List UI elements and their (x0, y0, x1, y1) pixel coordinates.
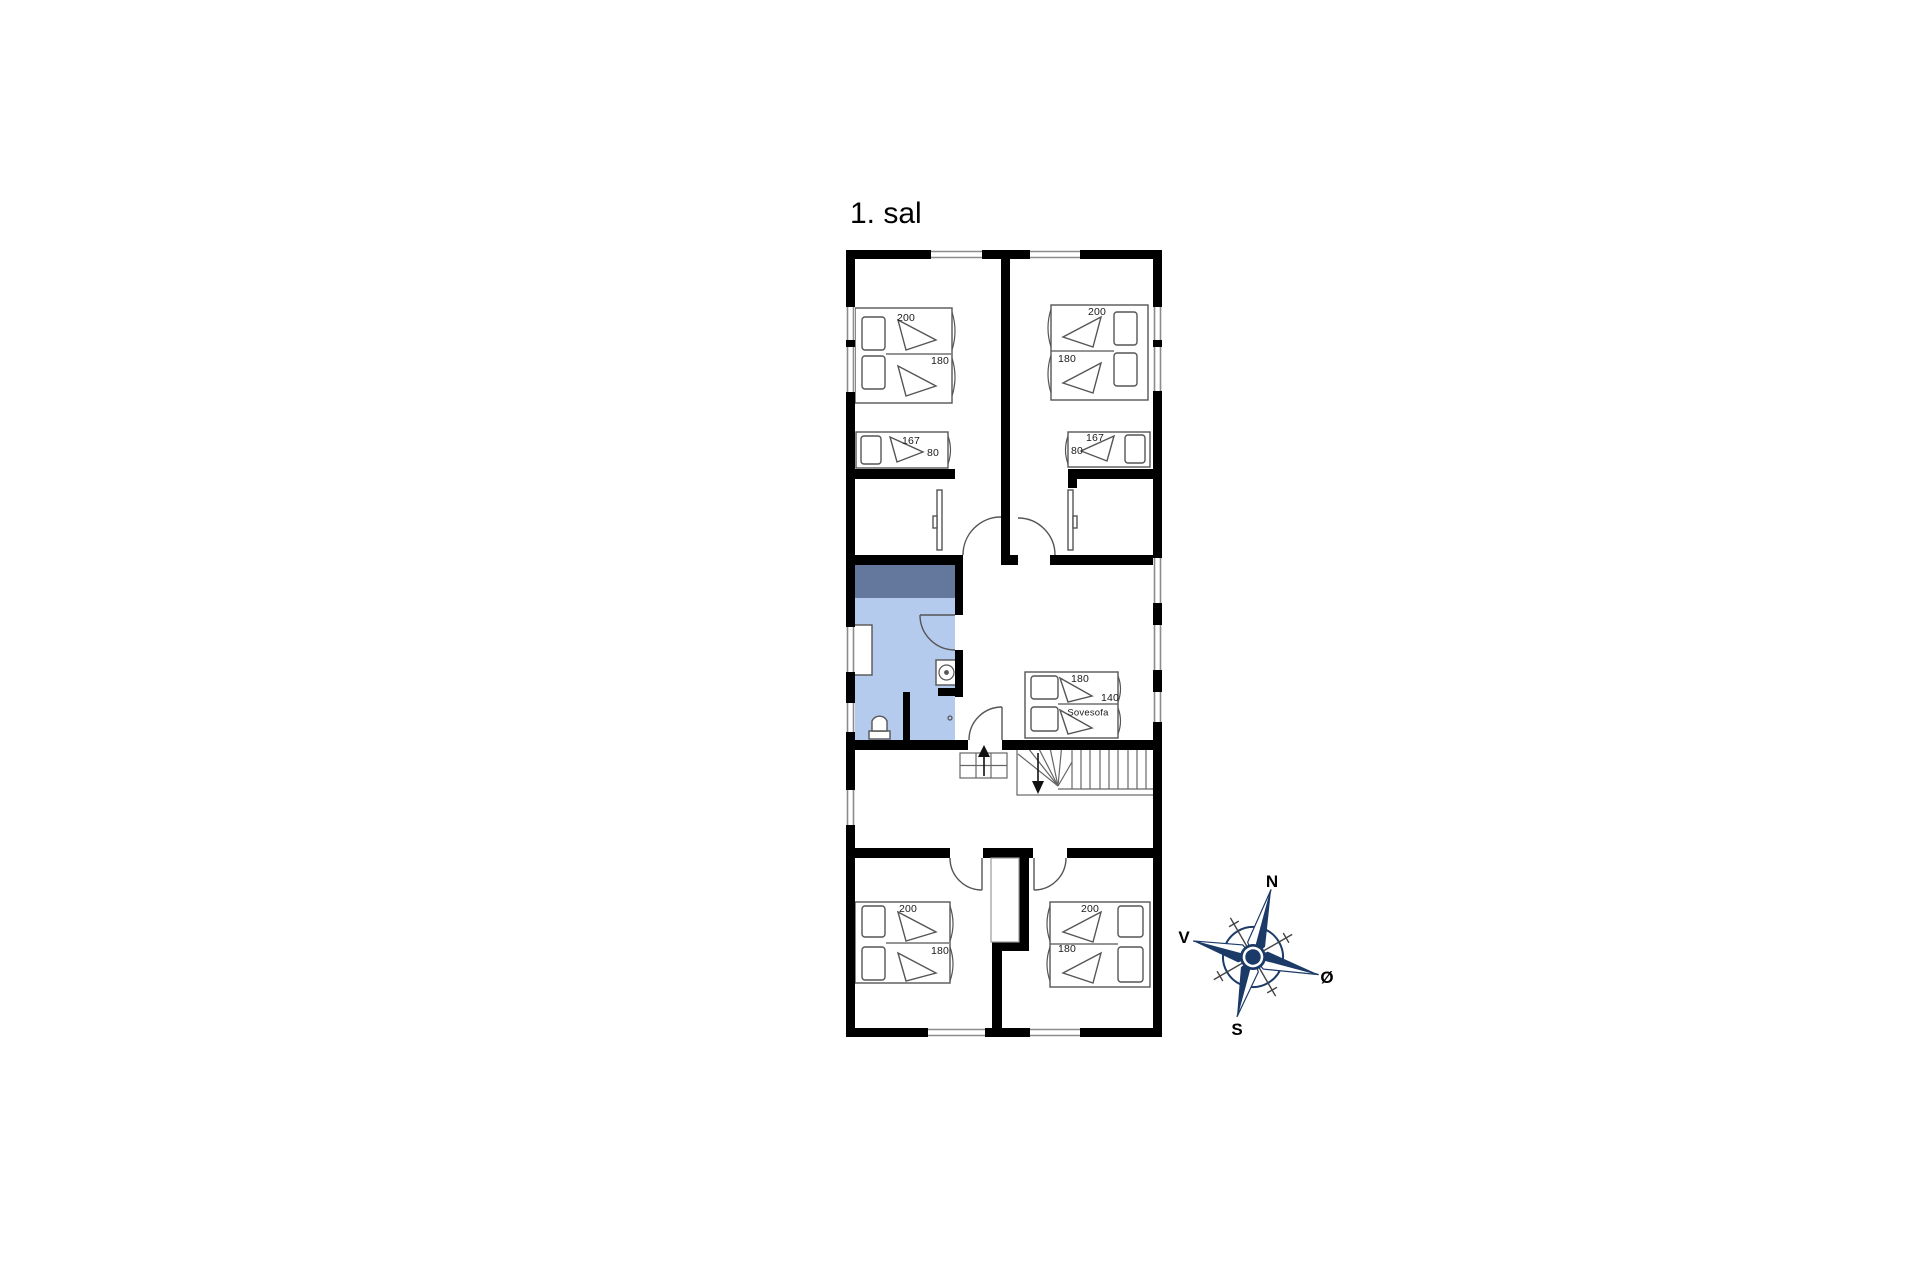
compass-south-label: S (1231, 1020, 1242, 1040)
door-leaf-top-left (933, 490, 942, 550)
bed-width-label: 80 (927, 447, 939, 459)
niche (991, 858, 1019, 942)
sink-icon (936, 660, 957, 685)
staircase-main (1017, 743, 1158, 795)
bed-length-label: 167 (902, 435, 920, 447)
door-arc-top-right-room (1018, 518, 1055, 555)
door-leaf-top-right (1068, 490, 1077, 550)
compass-north-label: N (1266, 872, 1278, 892)
compass-west-label: V (1178, 928, 1189, 948)
door-arc-bottom-right-room (1034, 858, 1066, 890)
bed-width-label: 180 (931, 355, 949, 367)
bed-length-label: 200 (899, 903, 917, 915)
stairs-down-arrow (1032, 781, 1044, 794)
bed-width-label: 180 (1058, 943, 1076, 955)
bed-width-label: 80 (1071, 445, 1083, 457)
sofa-length-label: 180 (1071, 673, 1089, 685)
stairs-up-arrow (978, 745, 990, 757)
shower-cabinet (854, 625, 872, 675)
bed-length-label: 167 (1086, 432, 1104, 444)
door-arc-top-left-room (963, 517, 1001, 555)
bed-length-label: 200 (1081, 903, 1099, 915)
bed-width-label: 180 (931, 945, 949, 957)
door-arc-bottom-left-room (950, 858, 982, 890)
door-arc-middle-room (969, 707, 1002, 740)
sofa-width-label: 140 (1101, 692, 1119, 704)
bed-width-label: 180 (1058, 353, 1076, 365)
bed-length-label: 200 (1088, 306, 1106, 318)
compass-east-label: Ø (1320, 968, 1333, 988)
sofa-bed-name: Sovesofa (1067, 708, 1108, 719)
bed-length-label: 200 (897, 312, 915, 324)
compass-rose (1177, 873, 1337, 1034)
toilet-icon (869, 716, 890, 739)
floorplan-drawing (0, 0, 1920, 1279)
floorplan-canvas: 1. sal (0, 0, 1920, 1279)
